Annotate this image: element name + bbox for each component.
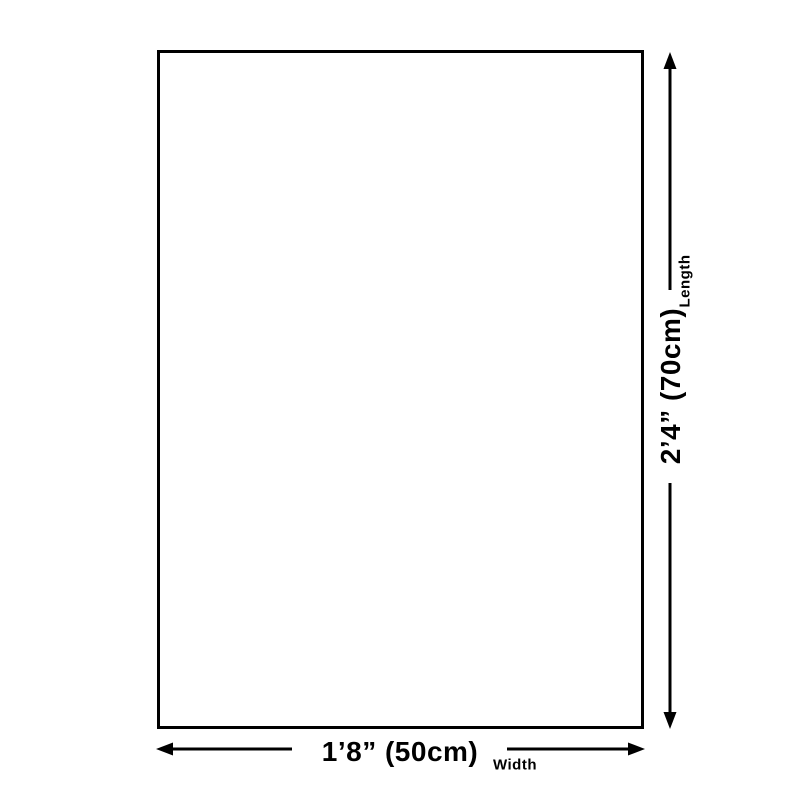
width-value: 1’8” (50cm) — [322, 736, 478, 768]
length-value: 2’4” (70cm) — [655, 308, 687, 464]
length-label: Length — [677, 255, 694, 308]
width-label: Width — [493, 757, 537, 774]
arrowhead-down-icon — [664, 712, 677, 729]
dimension-diagram: 1’8” (50cm) Width 2’4” (70cm) Length — [0, 0, 800, 800]
arrowhead-right-icon — [628, 743, 645, 756]
